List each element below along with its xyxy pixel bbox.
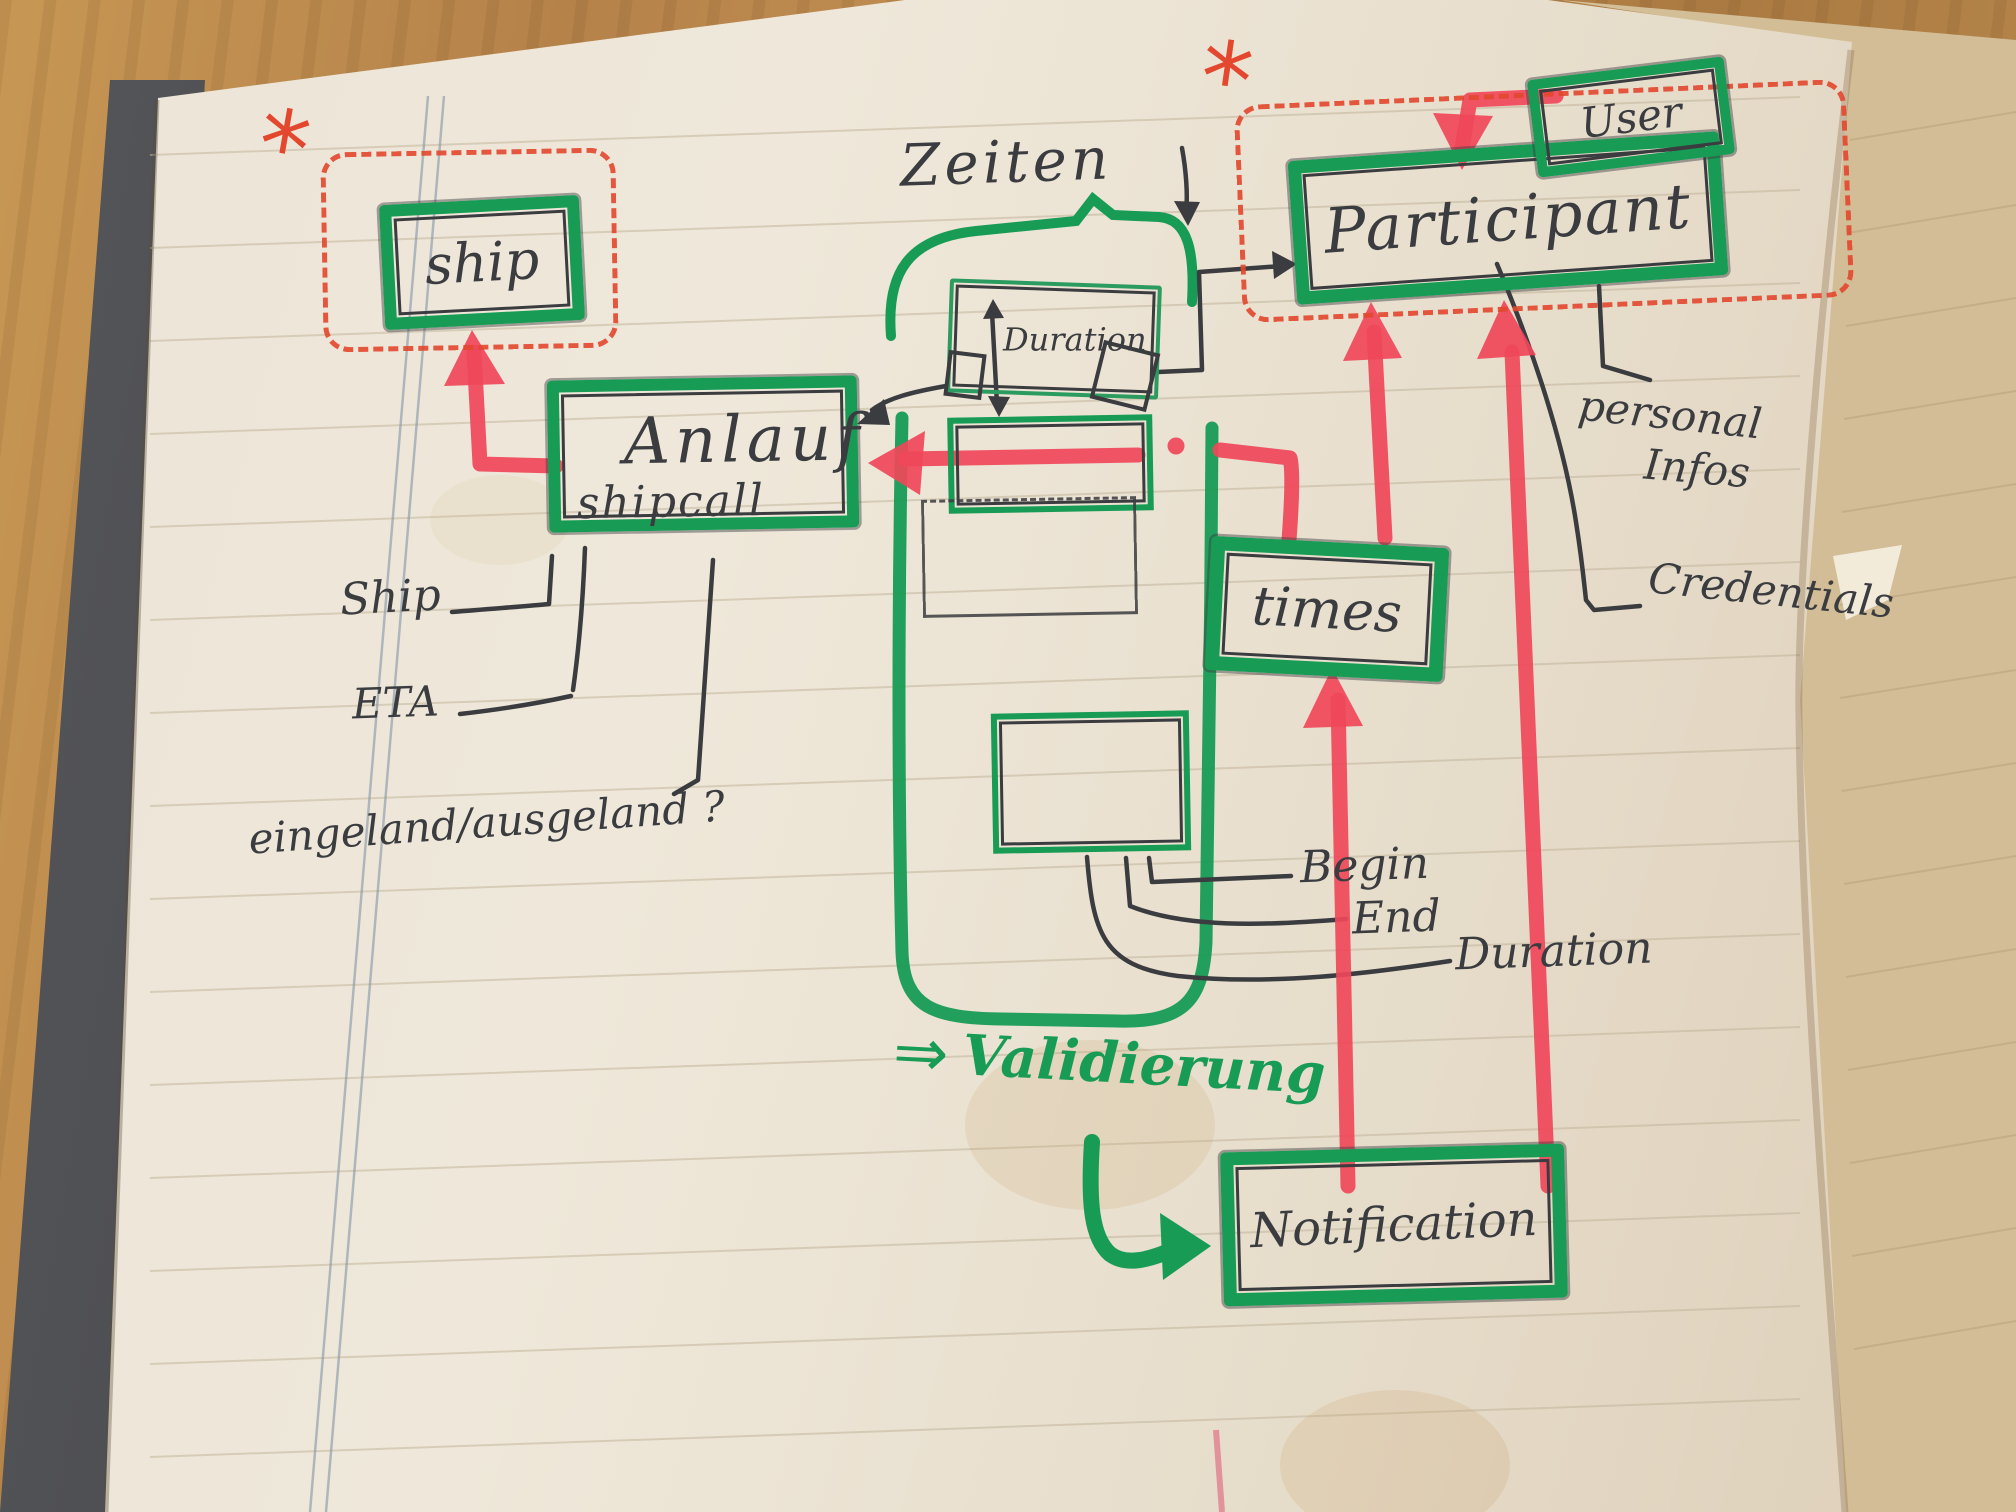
node-anlauf: Anlauf shipcall xyxy=(547,375,860,532)
label-ship-attr: Ship xyxy=(339,569,442,625)
node-user-label: User xyxy=(1577,86,1684,147)
node-ship-label: ship xyxy=(423,228,540,297)
label-eta: ETA xyxy=(351,677,439,729)
asterisk-icon: * xyxy=(253,114,313,182)
double-arrow-icon: ⇒ xyxy=(892,1019,951,1088)
duration-handle-left xyxy=(943,350,986,400)
time-slot-box-3 xyxy=(991,710,1191,853)
label-duration-attr: Duration xyxy=(1454,923,1653,981)
time-slot-box-2 xyxy=(921,496,1138,618)
node-anlauf-sublabel: shipcall xyxy=(576,475,765,529)
node-participant-label: Participant xyxy=(1322,169,1695,268)
node-times-label: times xyxy=(1251,574,1404,645)
notebook-photo: * * ship Anlauf shipcall Duration Partic… xyxy=(0,0,2016,1512)
label-begin: Begin xyxy=(1299,838,1430,893)
node-notification-label: Notification xyxy=(1249,1191,1539,1259)
node-ship: ship xyxy=(379,195,585,330)
asterisk-icon: * xyxy=(1196,47,1255,115)
node-times: times xyxy=(1205,536,1450,682)
label-personal-2: Infos xyxy=(1642,439,1752,497)
node-notification: Notification xyxy=(1220,1144,1568,1307)
zeiten-annotation: Zeiten xyxy=(899,124,1113,199)
label-end: End xyxy=(1351,890,1441,944)
node-anlauf-label: Anlauf xyxy=(623,401,865,479)
